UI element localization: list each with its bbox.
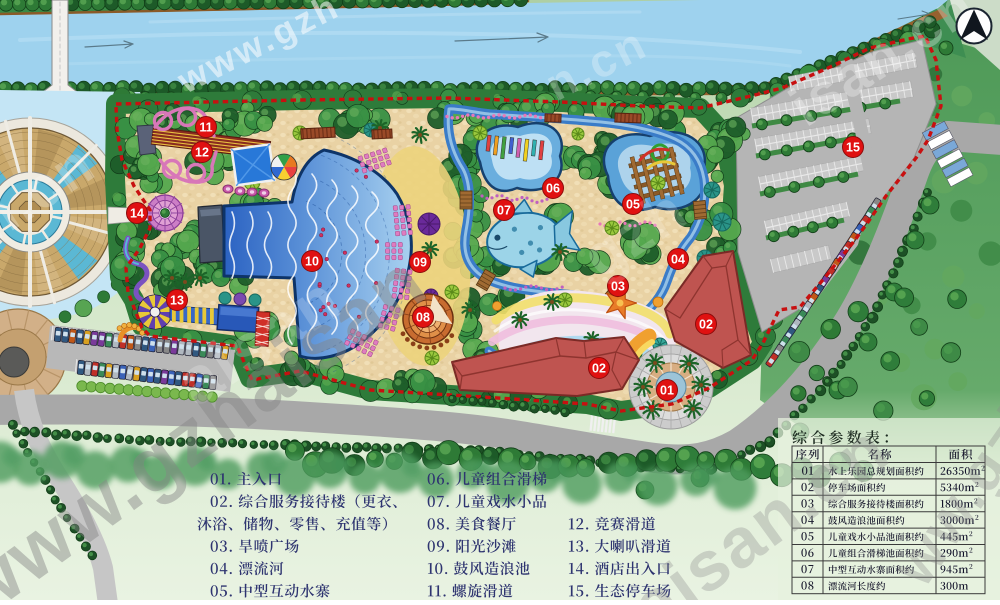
svg-text:14: 14 xyxy=(130,206,144,220)
svg-text:06: 06 xyxy=(546,181,560,195)
svg-text:15: 15 xyxy=(846,140,860,154)
svg-text:07: 07 xyxy=(497,203,511,217)
svg-text:11: 11 xyxy=(199,120,212,134)
svg-text:04: 04 xyxy=(671,252,685,266)
svg-text:13: 13 xyxy=(170,293,184,307)
svg-text:01: 01 xyxy=(660,383,674,397)
svg-text:09: 09 xyxy=(413,255,427,269)
svg-text:02: 02 xyxy=(699,317,713,331)
svg-text:02: 02 xyxy=(592,361,606,375)
svg-text:12: 12 xyxy=(195,145,209,159)
